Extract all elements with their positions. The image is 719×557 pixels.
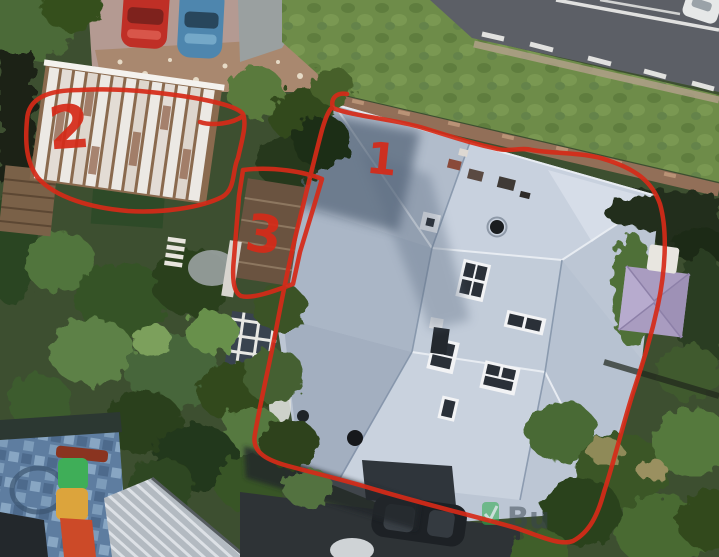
annotation-label-2: 2 [46,92,93,165]
chimney [490,220,504,234]
aerial-photo-canvas: Bu 1 2 3 [0,0,719,557]
satellite-image: Bu 1 2 3 [0,0,719,557]
red-car [120,0,170,50]
watermark-text: Bu [507,501,550,535]
blue-car [177,0,226,59]
annotation-label-1: 1 [364,133,400,187]
